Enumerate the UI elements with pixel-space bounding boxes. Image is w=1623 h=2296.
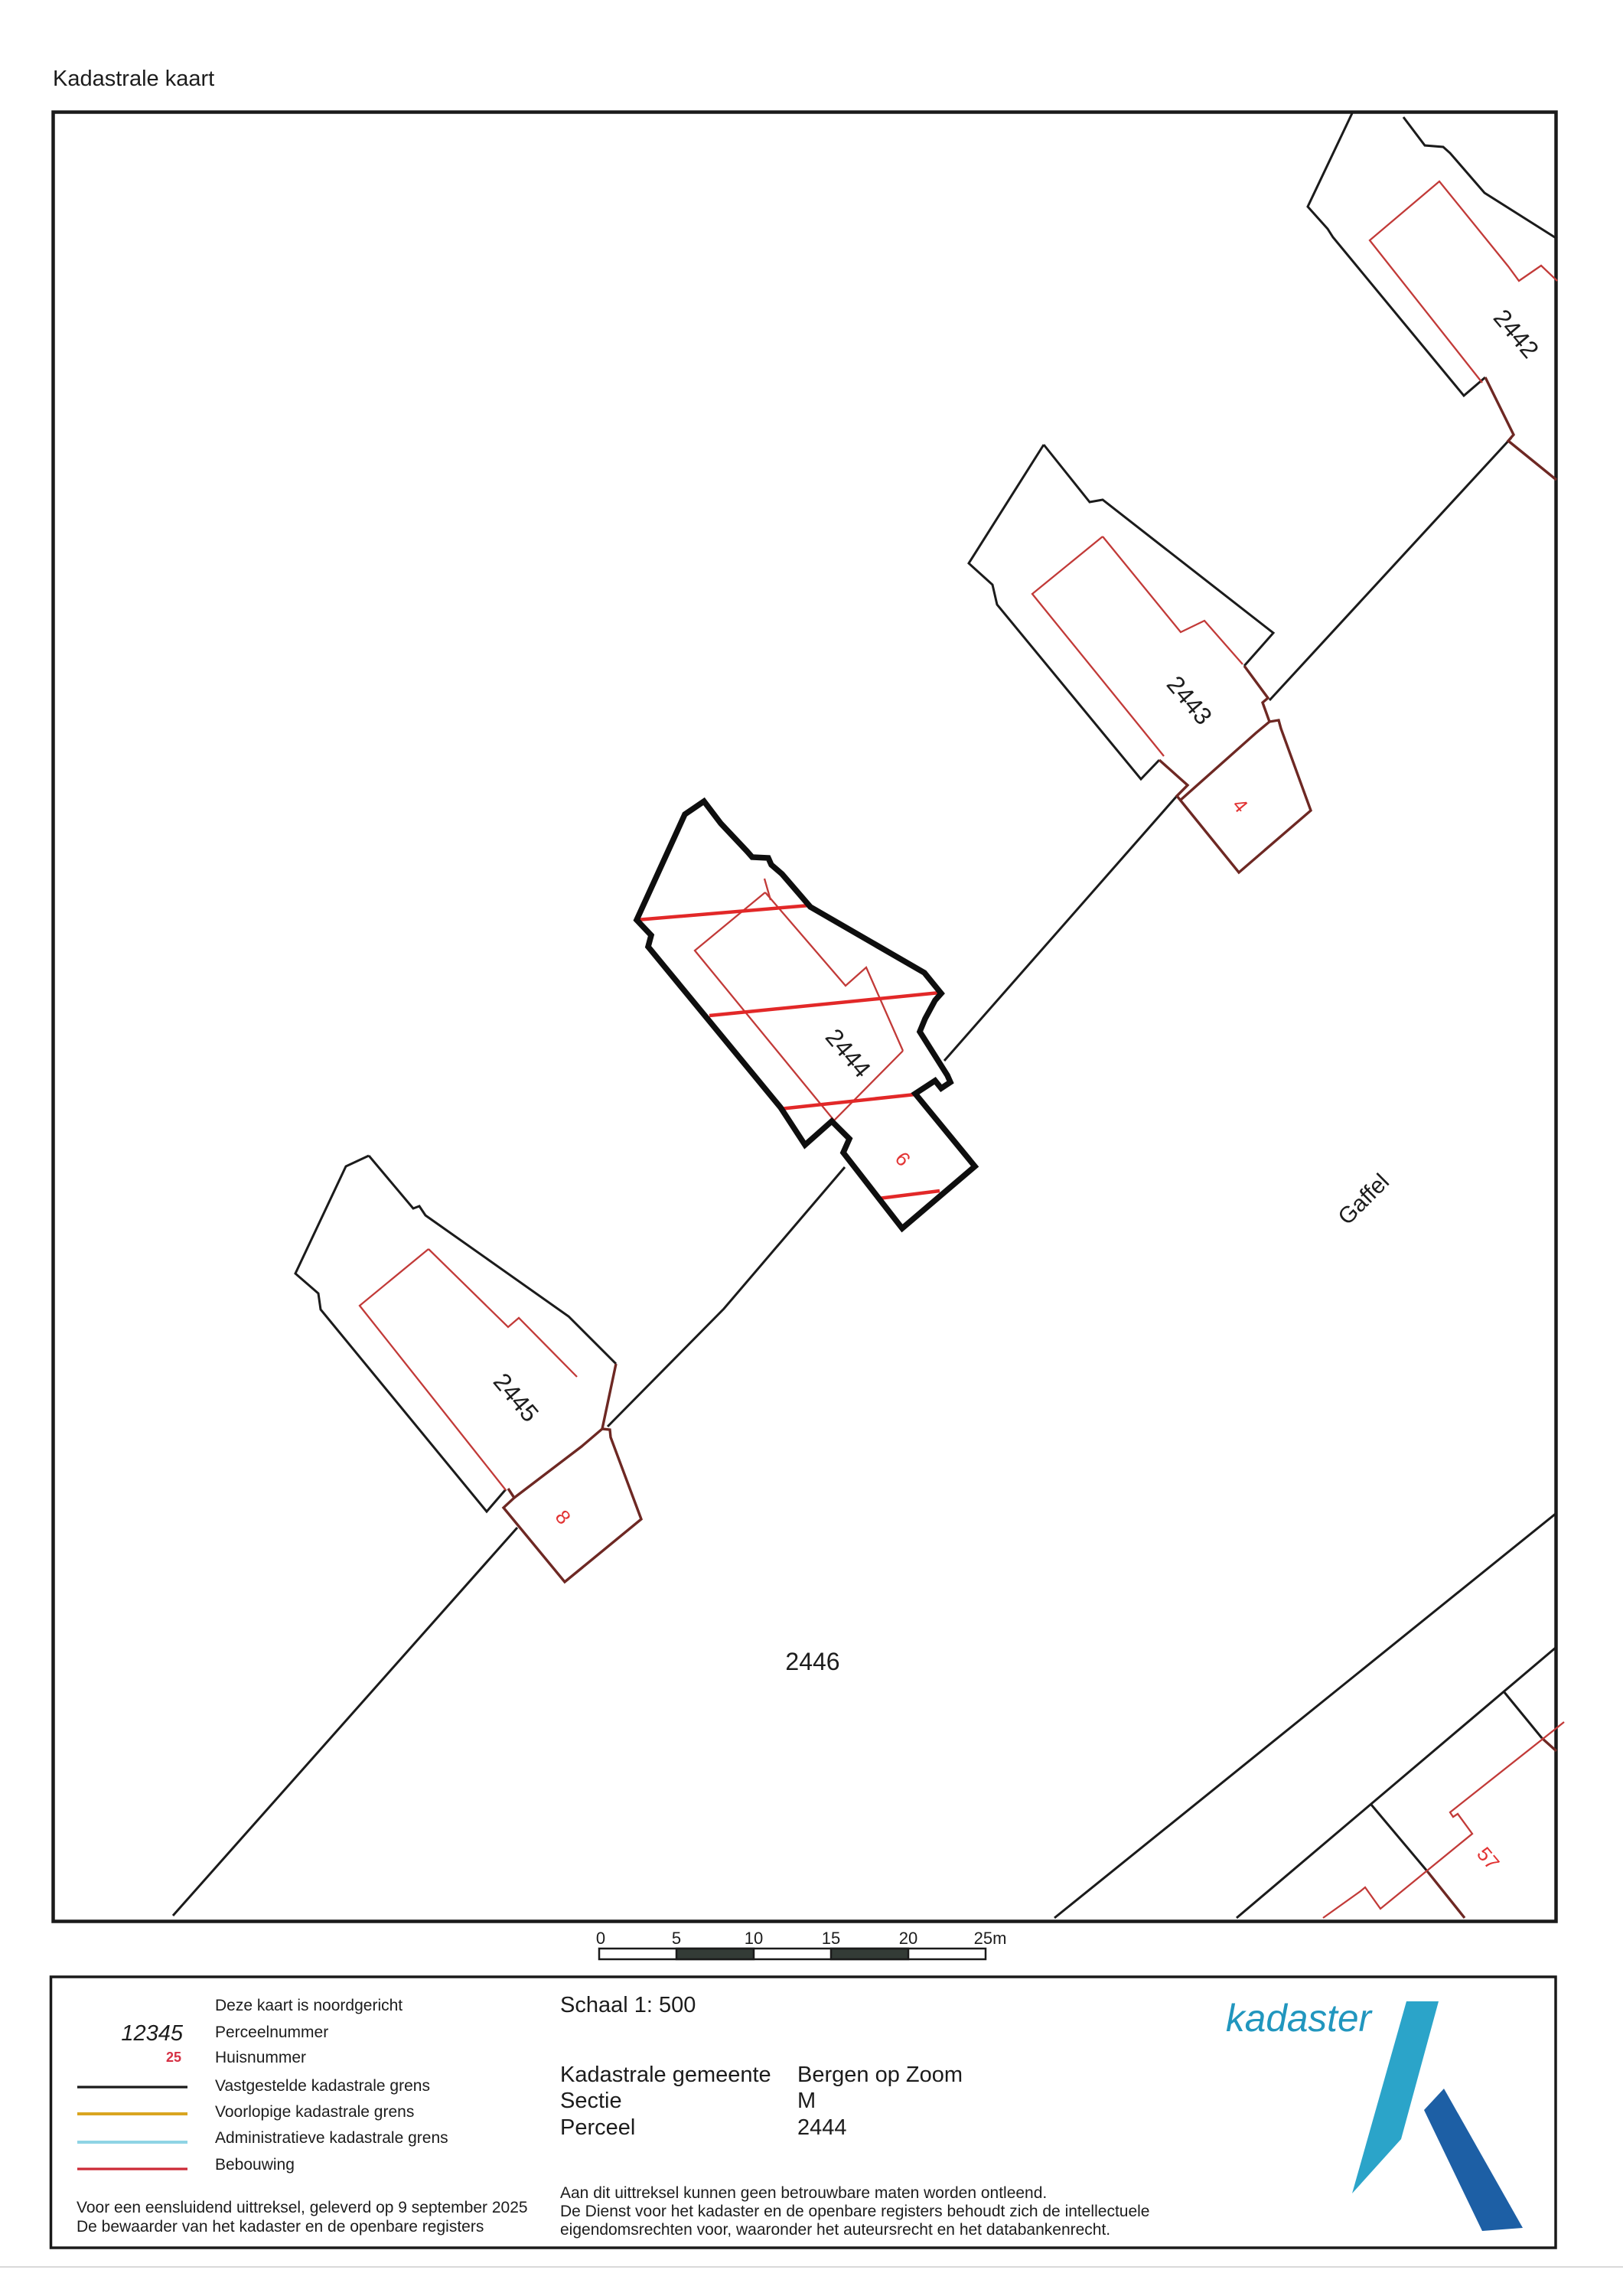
svg-text:Perceel: Perceel [560,2115,635,2140]
svg-text:Bergen op Zoom: Bergen op Zoom [797,2063,963,2087]
svg-text:2446: 2446 [785,1648,839,1675]
svg-text:Bebouwing: Bebouwing [215,2156,295,2174]
svg-text:Vastgestelde kadastrale grens: Vastgestelde kadastrale grens [215,2077,430,2095]
svg-text:Kadastrale kaart: Kadastrale kaart [53,67,214,91]
svg-text:15: 15 [822,1929,840,1948]
svg-text:Kadastrale gemeente: Kadastrale gemeente [560,2063,771,2087]
svg-text:0: 0 [596,1929,605,1948]
svg-text:Sectie: Sectie [560,2089,622,2113]
svg-text:De bewaarder van het kadaster: De bewaarder van het kadaster en de open… [77,2218,484,2236]
svg-text:12345: 12345 [121,2021,184,2046]
svg-text:kadaster: kadaster [1226,1997,1373,2040]
svg-text:5: 5 [672,1929,681,1948]
svg-text:Voorlopige kadastrale grens: Voorlopige kadastrale grens [215,2103,414,2121]
svg-text:Deze kaart is noordgericht: Deze kaart is noordgericht [215,1997,402,2014]
svg-text:20: 20 [899,1929,917,1948]
svg-text:10: 10 [745,1929,763,1948]
svg-text:2444: 2444 [797,2115,847,2140]
svg-text:Huisnummer: Huisnummer [215,2049,306,2066]
svg-text:Aan dit uittreksel kunnen geen: Aan dit uittreksel kunnen geen betrouwba… [560,2184,1047,2202]
svg-text:Administratieve kadastrale gre: Administratieve kadastrale grens [215,2129,448,2147]
svg-text:Voor een eensluidend uittrekse: Voor een eensluidend uittreksel, gelever… [77,2199,528,2216]
svg-text:M: M [797,2089,816,2113]
svg-text:Schaal 1: 500: Schaal 1: 500 [560,1993,696,2017]
svg-text:Perceelnummer: Perceelnummer [215,2024,328,2041]
svg-text:25m: 25m [974,1929,1007,1948]
svg-text:De Dienst voor het kadaster en: De Dienst voor het kadaster en de openba… [560,2203,1149,2220]
svg-text:25: 25 [166,2050,181,2065]
svg-text:eigendomsrechten voor, waarond: eigendomsrechten voor, waaronder het aut… [560,2221,1110,2239]
